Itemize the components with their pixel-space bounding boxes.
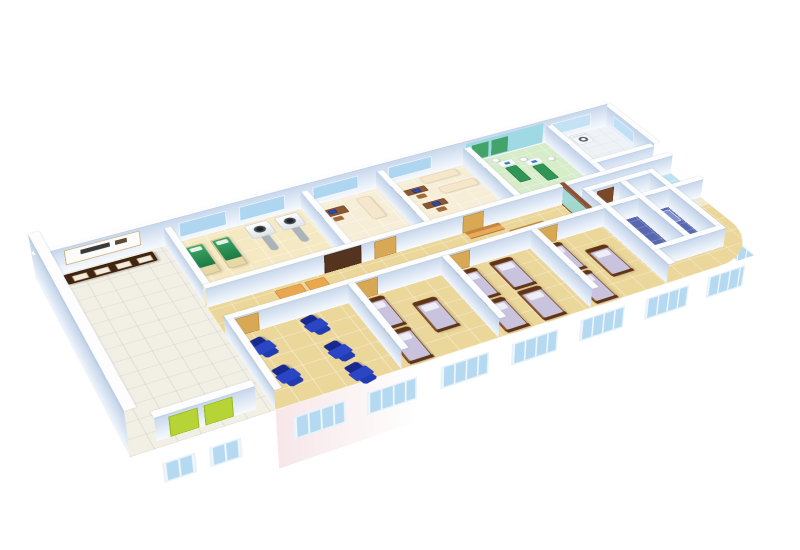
scanner-table xyxy=(291,227,310,243)
facade-front-main-window-4 xyxy=(511,329,559,366)
physio-machine-panel xyxy=(504,162,511,165)
facade-front-main-window-6 xyxy=(644,285,689,321)
facade-front-main-window-2 xyxy=(367,377,417,416)
facade-front-main-window-1 xyxy=(293,400,346,440)
green-panel-physio-2-pane xyxy=(491,136,508,156)
scanner-ring xyxy=(282,217,298,226)
facade-front-main-window-5 xyxy=(579,306,625,342)
facade-front-main-window-7 xyxy=(705,265,745,299)
floorplan-scene xyxy=(0,0,800,550)
computer-monitor xyxy=(431,201,442,206)
sign-text-mark-2 xyxy=(115,237,129,259)
facade-front-main-window-3 xyxy=(440,351,489,389)
machine-drum xyxy=(577,136,590,142)
building-floor-plane xyxy=(28,112,768,457)
computer-monitor xyxy=(327,209,337,214)
physio-machine-panel xyxy=(531,160,538,163)
scanner-table xyxy=(261,235,280,251)
facade-front-lobby-window-2 xyxy=(209,437,243,467)
computer-monitor xyxy=(411,188,421,193)
facade-front-lobby-window-1 xyxy=(162,452,197,483)
scanner-ring xyxy=(252,225,268,234)
